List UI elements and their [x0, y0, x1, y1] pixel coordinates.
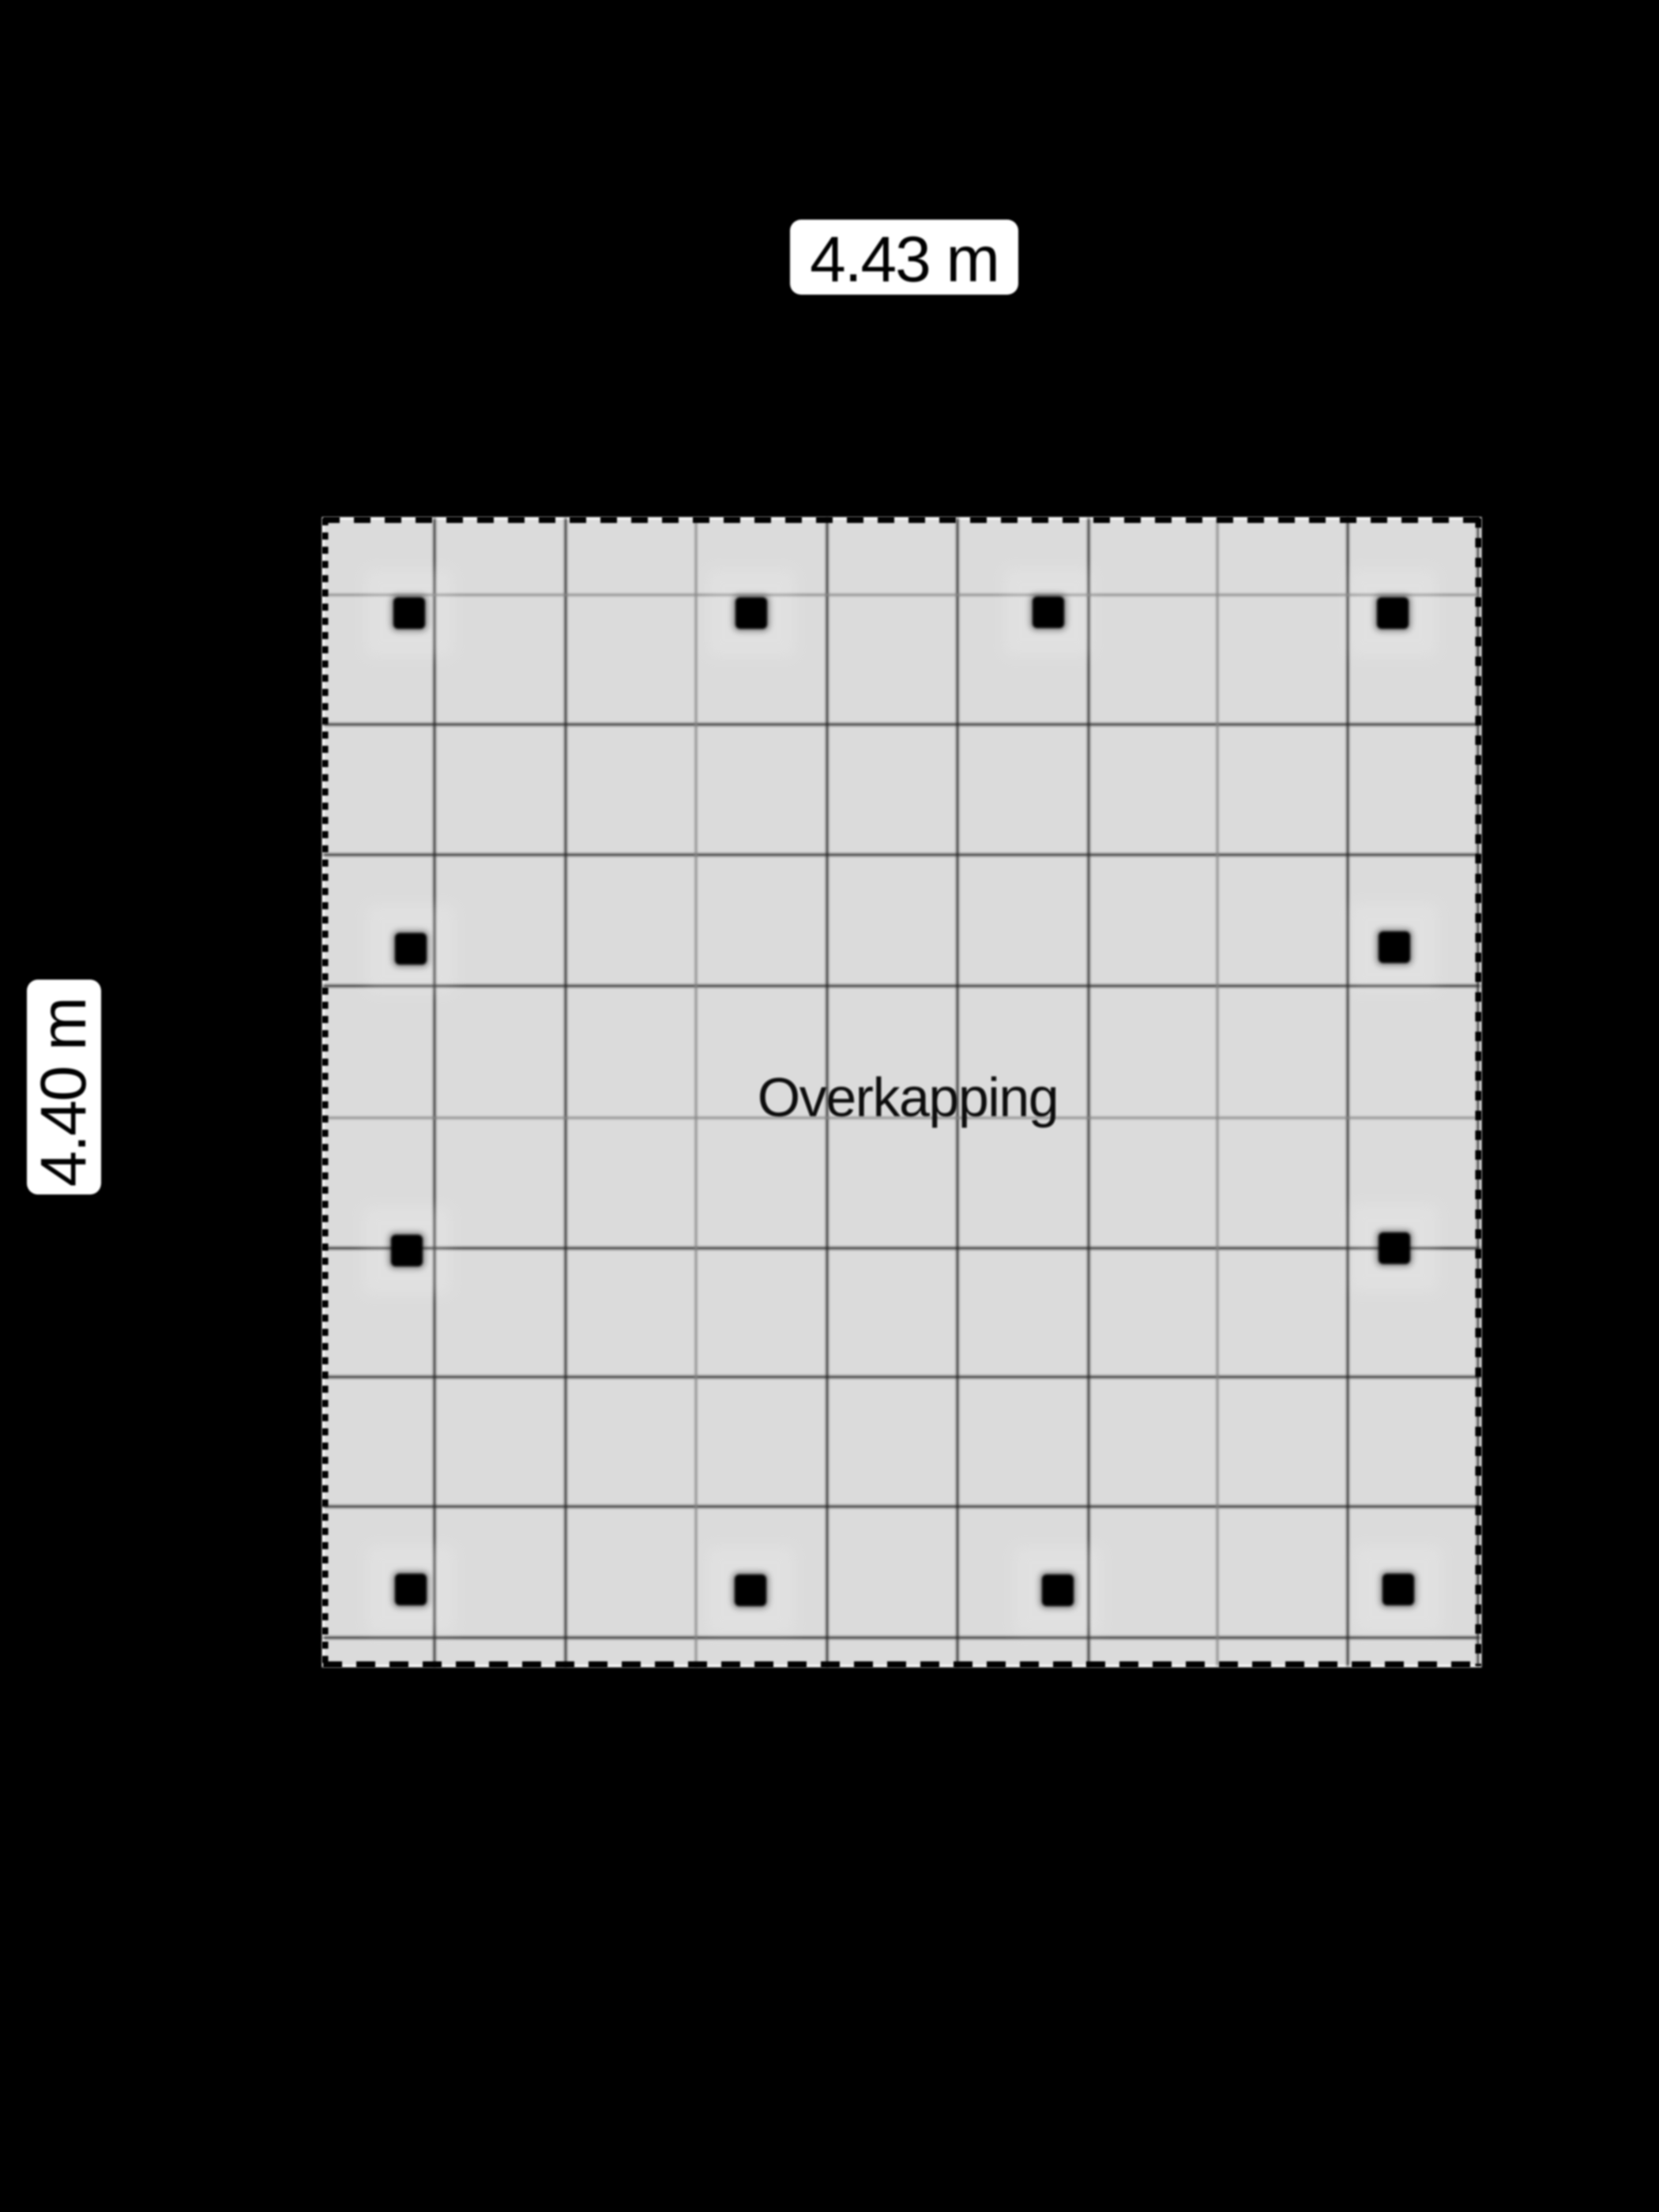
svg-text:Overkapping: Overkapping — [758, 1066, 1058, 1128]
